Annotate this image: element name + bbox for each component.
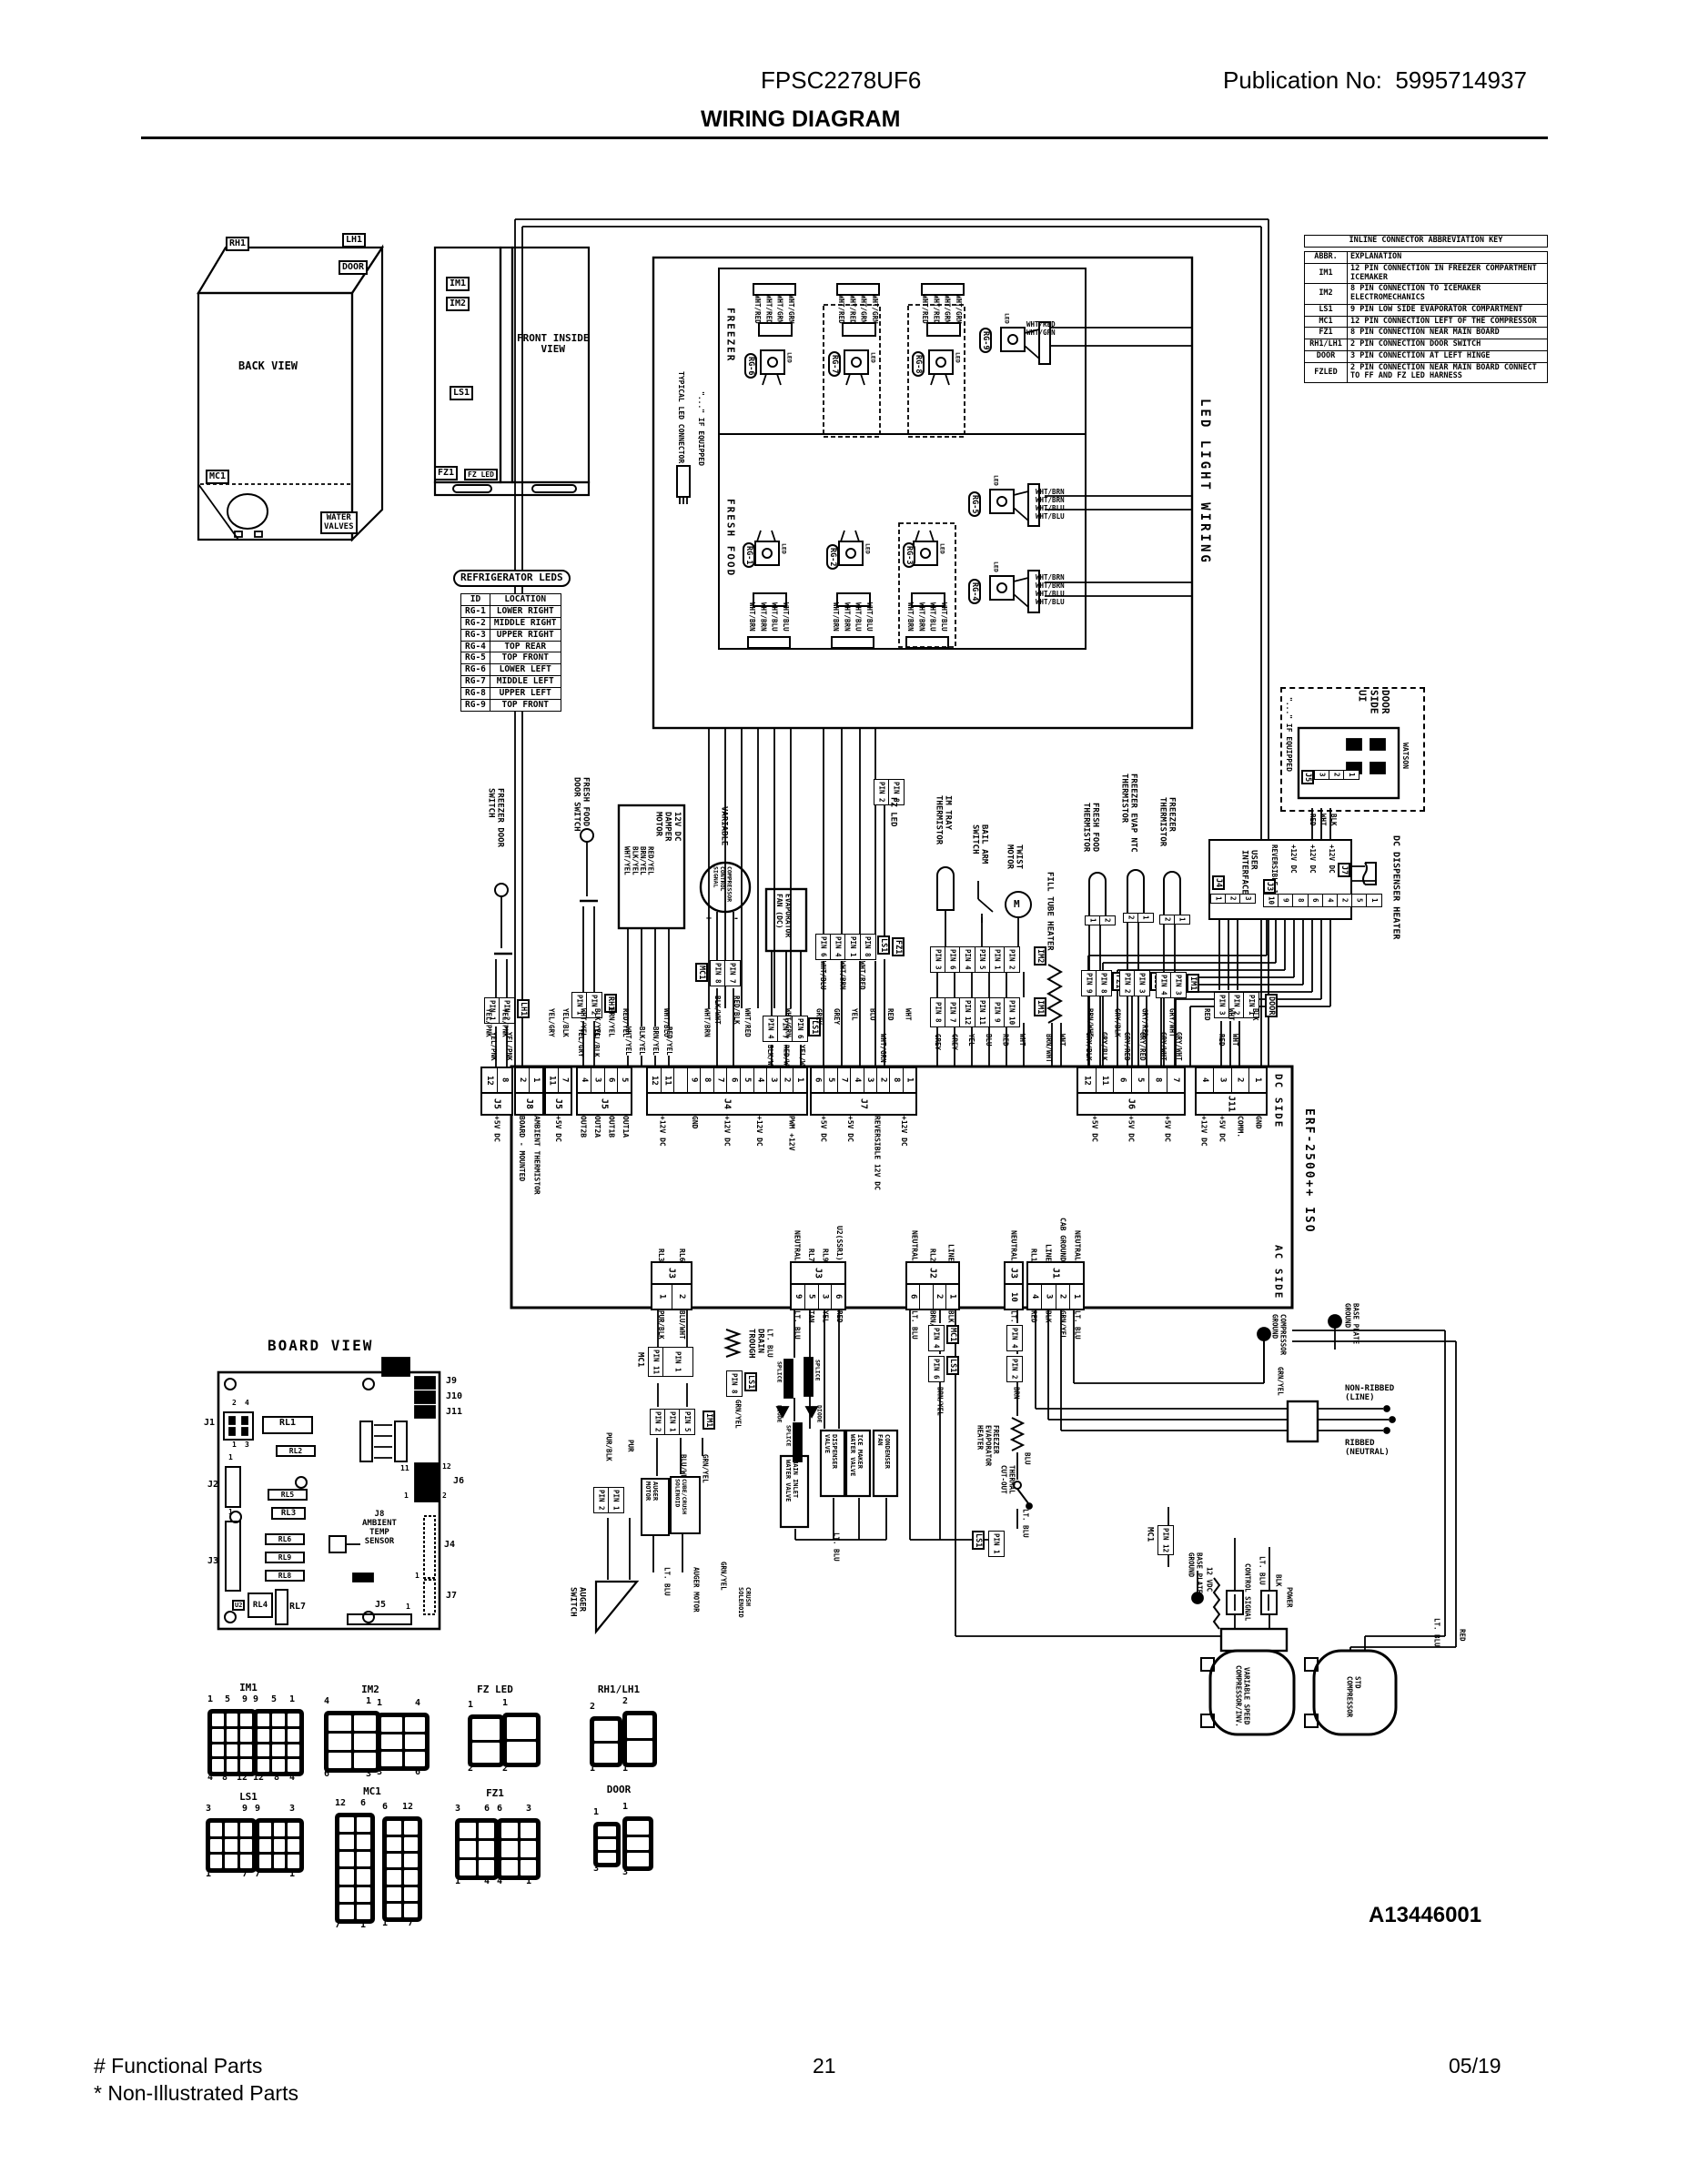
table-row: RH1/LH12 PIN CONNECTION DOOR SWITCH [1305,339,1548,351]
plus-label: + [706,914,712,924]
im1-wires-label: WHT [1018,1034,1026,1050]
pin-hole [472,1743,500,1764]
pin-hole [240,1855,252,1868]
item-label: 7 [335,1920,340,1930]
item-label: RED [1203,1008,1211,1067]
freezer-mod2-wires-label: WHT/GRN [860,295,868,324]
pin-hole [357,1835,371,1849]
led-module-led-label: LED [785,352,792,363]
fzled-label: FZ LED [888,797,897,827]
bv-j3p1: 1 [228,1509,233,1517]
pin-hole [339,1887,354,1902]
item-label: 6 [812,1068,824,1092]
door-side-ui-title: DOOR SIDE UI [1356,690,1390,714]
w-grnyel-1: GRN/YEL [701,1454,709,1483]
table-row: RG-8UPPER LEFT [461,688,561,700]
bv-rl1: RL1 [262,1416,313,1434]
item-label: 4 [754,1068,768,1092]
ff-thermistor-small-label: 2 [1099,915,1116,925]
im1-wires-label: GREY [934,1034,942,1050]
mc1-pin12-box: PIN 12 [1157,1525,1172,1555]
cv-fz1-right-block [497,1818,541,1880]
item-label: COMM. [1237,1116,1245,1227]
item-label: YEL [821,1310,829,1365]
item-label: 7 [242,1869,248,1879]
evap-ntc-pins-label: PIN 3 [1134,970,1150,996]
rg4-wires-label: WHT/BRN [1036,573,1065,581]
item-label: 3 [366,1769,371,1779]
fresh-mod3-wires-label: WHT/BLU [940,602,948,632]
w-blk-comp: BLK [1274,1574,1282,1587]
bv-j4: J4 [444,1540,455,1550]
ls1-tag-bottom: LS1 [972,1531,985,1550]
connector-key-rows: ABBR.EXPLANATIONIM112 PIN CONNECTION IN … [1304,251,1548,383]
im2-strip: PIN 3PIN 6PIN 4PIN 5PIN 1PIN 2 [930,946,1018,973]
splice-3: SPLICE [784,1425,791,1446]
item-label: 2 [781,1068,794,1092]
cv-ls1-left-block [206,1818,257,1873]
pin-hole [225,1823,237,1836]
ff-door-switch-label: FRESH FOOD DOOR SWITCH [571,777,591,832]
item-label: WHT/BRN [702,1008,711,1067]
item-label: WHT/GRN [783,1008,792,1067]
mc1-pins-mid-label: PIN 7 [724,960,741,986]
pin-hole [272,1714,284,1726]
table-row: IM112 PIN CONNECTION IN FREEZER COMPARTM… [1305,263,1548,284]
twist-motor-label: TWIST MOTOR [1005,844,1024,869]
mc1-lower-pins: PIN 11PIN 1 [648,1347,692,1377]
fzled-fz1-tag: FZ1 [892,937,905,956]
im1-wires-label: GREY [951,1034,959,1050]
pin-hole [354,1753,377,1768]
cv-im1-lb: 4812 [207,1773,248,1783]
table-row: RG-7MIDDLE LEFT [461,676,561,688]
pin-hole [501,1823,518,1838]
item-label: 3 [455,1804,460,1814]
pin-hole [381,1752,402,1766]
item-label: U2(SSR1) [835,1226,844,1261]
led-feed-wires-label: WHT/RED [858,961,866,990]
item-label: 12 [335,1798,346,1808]
control-signal-label: CONTROL SIGNAL [1243,1563,1251,1621]
item-label: 1 [622,1764,628,1774]
item-label: RL1 [1030,1249,1038,1261]
bail-arm-switch-label: BAIL ARM SWITCH [970,824,989,864]
led-module-led-label: LED [992,561,998,572]
item-label: 6 [484,1804,490,1814]
bv-j5p1: 1 [406,1603,410,1612]
watson-label: WATSON [1401,743,1410,769]
item-label: LT. BLU [1074,1310,1082,1365]
item-label: BRN/WHT [1087,1008,1095,1067]
pin-hole [240,1823,252,1836]
item-label: WHT/BLU [662,1008,671,1067]
door-ui-j5-wires: REDWHTBLK [1309,814,1338,826]
w-brn: BRN [1012,1387,1020,1400]
w-purblk-1: PUR/BLK [604,1432,612,1461]
item-label: 1 [904,1068,915,1092]
pin-hole [274,1855,286,1868]
item-label: +5V DC [1218,1116,1227,1227]
pin-hole [288,1855,299,1868]
backview-rh1-tag: RH1 [226,237,249,251]
base-plate-ground-label2: BASE PLATE GROUND [1187,1552,1202,1593]
pin-hole [329,1753,351,1768]
item-label: 7 [255,1869,260,1879]
table-row: LS19 PIN LOW SIDE EVAPORATOR COMPARTMENT [1305,304,1548,316]
item-label: 3 [591,1068,605,1092]
ff-thermistor-pins-label: PIN 8 [1096,970,1112,996]
pin-hole [594,1744,618,1764]
item-label: YEL [851,1008,859,1067]
door-ui-j5-wires-label: WHT [1319,814,1328,826]
dc-conn-j8: 21 J8 BOARD - MOUNTEDAMBIENT THERMISTOR [514,1008,544,1227]
bv-j9: J9 [446,1376,457,1386]
rg5-wires-label: WHT/BRN [1036,496,1065,504]
ff-thermistor-label: FRESH FOOD THERMISTOR [1081,803,1100,852]
rg4-label: RG-4 [968,579,981,604]
item-label: 1 [1070,1285,1083,1309]
item-label: 3 [1042,1285,1056,1309]
w-ltblu-heater: LT. BLU [1021,1509,1029,1538]
led-module-led-label: LED [869,352,875,363]
bv-j6p11: 11 [400,1465,409,1473]
led-feed-wires: WHT/BLUWHT/BRNWHT/RED [819,961,866,990]
item-label: 1 [793,1068,806,1092]
item-label: GRN/YEL [1059,1310,1067,1365]
bv-j11: J11 [446,1407,462,1417]
j5a-pins-label: 12 [482,1068,498,1092]
pin-hole [357,1817,371,1832]
item-label: 12 [648,1068,662,1092]
item-label: 7 [1167,1068,1185,1092]
item-label: 9 [255,1804,260,1814]
freezer-mod2-wires-label: WHT/RED [848,295,856,324]
j5a-wires-label: YEL/PNK [485,1008,493,1067]
splice-2: SPLICE [814,1360,820,1380]
pin-hole [274,1839,286,1853]
item-label: OUT2B [579,1116,587,1227]
freezer-mod1-wires-label: WHT/RED [764,295,773,324]
im-tray-thermistor-label: IM TRAY THERMISTOR [934,795,953,844]
fill-tube-wires-label: BRN/WHT [1045,1034,1053,1063]
drain-trough-label: DRAIN TROUGH [746,1329,765,1359]
pin-hole [354,1715,377,1731]
damper-wires-label: BLK/YEL [638,1026,646,1056]
door-ui-j5-wires-label: BLK [1329,814,1338,826]
thermal-cutout-label: THERMAL CUT-OUT [999,1465,1015,1494]
pin-hole [259,1839,271,1853]
item-label: 9 [792,1285,805,1309]
led-feed-pins: PIN 6PIN 4PIN 1PIN 8 [815,934,874,960]
mc1-pin12-tag: MC1 [1145,1527,1154,1542]
w-brnyel-lower: BRN/YEL [935,1387,944,1416]
pin-hole [627,1715,652,1738]
item-label: CAB GROUND [1059,1218,1067,1261]
item-label: +5V DC [846,1116,854,1227]
item-label: 6 [1114,1068,1132,1092]
pin-hole [225,1855,237,1868]
table-row: RG-9TOP FRONT [461,699,561,711]
ui-j3-pins-label: 1 [1366,894,1382,907]
freezer-mod3-wires-label: WHT/RED [921,295,929,324]
pin-hole [227,1714,238,1726]
freezer-mod1-wires-label: WHT/GRN [787,295,795,324]
bv-rl4: RL4 [248,1592,273,1618]
mc1-pin4-tag: MC1 [946,1325,959,1344]
backview-mc1-tag: MC1 [206,470,229,484]
im1-strip-label: PIN 10 [1004,997,1020,1027]
item-label: 1 [377,1698,382,1708]
freezer-mod2-wires: WHT/REDWHT/REDWHT/GRNWHT/GRN [837,295,879,324]
fresh-mod2-wires-label: WHT/BLU [854,602,863,632]
item-label: 6 [324,1769,329,1779]
item-label: 2 [590,1702,595,1712]
item-label: 4 [1028,1285,1042,1309]
cv-mc1-left-block [335,1813,375,1924]
cv-fzled-left-block [468,1714,504,1767]
bv-j2p1: 1 [228,1454,233,1462]
cv-im1-title: IM1 [217,1682,280,1694]
crush-solenoid-label: CRUSH SOLENOID [737,1587,752,1618]
mc1-pin4-box: PIN 4 [928,1325,943,1351]
pin-hole [210,1839,222,1853]
door-ui-j5-label: J5 [1301,770,1314,784]
dispenser-valve-label: DISPENSER VALVE [824,1434,838,1469]
item-label: 3 [206,1804,211,1814]
freezer-thermistor-label: FREEZER THERMISTOR [1157,797,1177,846]
led-feed-wires-label: WHT/BRN [839,961,847,990]
pin-hole [405,1734,426,1749]
pin-hole [627,1853,649,1866]
fresh-mod2-wires-label: WHT/BLU [865,602,874,632]
key-table-title: INLINE CONNECTOR ABBREVIATION KEY [1305,236,1548,248]
item-label [920,1285,933,1309]
mc1-tag-mid: MC1 [695,963,708,982]
item-label: WHT/RED [743,1008,752,1067]
pin-hole [598,1826,616,1836]
dc-conn-j5c: WHT/YELBLK/YELBRN/YELRED/YEL 4365 J5 OUT… [576,1008,632,1227]
table-row: IM28 PIN CONNECTION TO ICEMAKER ELECTROM… [1305,284,1548,305]
item-label: RL3 [657,1249,665,1261]
pin-hole [212,1744,224,1757]
cv-im1-lt: 159 [207,1694,248,1704]
pin-hole [288,1823,299,1836]
im1-strip: PIN 8PIN 7PIN 12PIN 11PIN 9PIN 10 [930,997,1018,1027]
item-label [674,1068,688,1092]
typical-led-connector-label: TYPICAL LED CONNECTOR [677,371,685,463]
cv-im1-lb-label: 12 [237,1773,248,1783]
item-label: NEUTRAL [793,1230,801,1261]
item-label: 6 [605,1068,619,1092]
item-label: GRY/BLK [1114,1008,1122,1067]
cv-rh1lh1-title: RH1/LH1 [577,1683,661,1695]
item-label: GREY [814,1008,823,1067]
item-label: RED [835,1310,844,1365]
ac-conn-j3a: RL3RL6 J3 12 PUR/BLKBLU/WHT [651,1185,692,1365]
evap-ntc-small-label: 1 [1137,913,1154,923]
ff-thermistor-pins: PIN 9PIN 8 [1081,970,1110,996]
mc1-auger-pins: PIN 2PIN 1 [593,1487,622,1513]
j5a-name: J5 [480,1094,513,1116]
w-grnyel-drain: GRN/YEL [733,1400,742,1429]
pin-hole [357,1887,371,1902]
pin-hole [288,1744,299,1757]
bv-rl9: RL9 [265,1552,305,1563]
rg6-label: RG-6 [744,353,757,379]
rg5-wires-label: WHT/BLU [1036,512,1065,521]
pin-hole [387,1821,401,1835]
bv-rl5: RL5 [268,1489,308,1501]
pin-hole [404,1854,419,1867]
ac-conn-j1: RL1LINECAB GROUNDNEUTRAL J1 4321 REDBLKG… [1026,1185,1085,1365]
w-grnyel-ground: GRN/YEL [1276,1367,1284,1396]
bv-j3: J3 [207,1556,218,1566]
pin-hole [240,1714,252,1726]
ui-j4-pins-label: 3 [1239,894,1256,904]
item-label: 4 [415,1698,420,1708]
w-blu: BLU [1023,1452,1031,1465]
led-feed-ls1-tag: LS1 [877,935,890,955]
w-ltblu-auger: LT. BLU [662,1567,671,1596]
cv-fzled-right-block [502,1713,541,1767]
pin-hole [258,1714,269,1726]
rg9-label: RG-9 [979,328,992,353]
fresh-mod1-wires-label: WHT/BRN [759,602,767,632]
pin-hole [594,1721,618,1741]
auger-motor-wire-label: AUGER MOTOR [692,1567,700,1613]
table-row: DOOR3 PIN CONNECTION AT LEFT HINGE [1305,350,1548,362]
bv-rl7: RL7 [289,1602,306,1612]
evap-ntc-label: FREEZER EVAP NTC THERMISTOR [1119,773,1138,853]
erf-board-label: ERF-2500++ ISO [1301,1108,1315,1234]
pin-hole [227,1744,238,1757]
item-label: 3 [622,1867,628,1877]
cv-im1-rb: 1284 [253,1773,295,1783]
item-label: RED [1030,1310,1038,1365]
j5a-signals-label: +5V DC [493,1116,501,1227]
led-feed-wires-label: WHT/BLU [819,961,827,990]
rg9-wires-label: WHT/GRN [1026,329,1056,337]
item-label: 8 [890,1068,903,1092]
frontview-fzled-tag: FZ LED [464,469,498,480]
fill-tube-heater-label: FILL TUBE HEATER [1045,872,1054,951]
main-inlet-label: MAIN INLET WATER VALVE [784,1460,799,1501]
cv-im2-title: IM2 [339,1683,402,1695]
w-grnyel-crush: GRN/YEL [719,1562,727,1591]
cv-im1-rt: 951 [253,1694,295,1704]
fresh-mod3-wires-label: WHT/BRN [917,602,925,632]
pin-hole [288,1714,299,1726]
item-label: 2 [672,1285,692,1309]
pin-hole [212,1714,224,1726]
pin-hole [387,1870,401,1884]
item-label: 1 [946,1285,958,1309]
ui-j3-pins: 109864251 [1263,894,1381,907]
mc1-pin4b: PIN 4 [1006,1325,1021,1351]
item-label: +12V DC [755,1116,763,1227]
bv-j1p3: 3 [245,1441,249,1450]
footer-page-number: 21 [813,2055,836,2078]
bv-j2: J2 [207,1480,218,1490]
item-label: 1 [360,1920,366,1930]
pin-hole [354,1734,377,1749]
auger-switch-label: AUGER SWITCH [568,1587,587,1617]
dc-conn-j6: BRN/WHTGRY/BLKGRY/REDGRY/WHT 12116587 J6… [1076,1008,1186,1227]
item-label: 6 [832,1285,844,1309]
evap-ntc-small: 21 [1123,913,1152,923]
item-label: 1 [530,1068,542,1092]
item-label: +5V DC [1164,1116,1172,1227]
item-label: 7 [838,1068,851,1092]
item-label: BLK [1045,1310,1053,1365]
ls1-pin6-tag: LS1 [946,1356,959,1375]
pin-hole [627,1741,652,1764]
pin-hole [339,1905,354,1919]
ls1-tag-drain: LS1 [744,1372,757,1391]
item-label: RED/YEL [622,1008,630,1067]
pin-hole [479,1860,495,1876]
ac-side-label: AC SIDE [1272,1245,1284,1299]
pin-hole [598,1853,616,1863]
bv-j4p1: 1 [415,1572,419,1581]
item-label: 3 [593,1864,599,1874]
fresh-mod3-wires: WHT/BRNWHT/BRNWHT/BLUWHT/BLU [906,602,948,632]
item-label: LINE [1045,1244,1053,1261]
pin-hole [405,1752,426,1766]
item-label: 1 [502,1698,508,1708]
item-label: 3 [377,1767,382,1777]
freezer-mod2-wires-label: WHT/RED [837,295,845,324]
cv-im1-lb-label: 8 [222,1773,227,1783]
ls1-pin6-box: PIN 6 [928,1356,943,1382]
rg5-wires: WHT/BRNWHT/BRNWHT/BLUWHT/BLU [1036,488,1065,521]
item-label: BLU [868,1008,876,1067]
door-ui-j5-pins: 321 [1314,770,1359,780]
led-module-led-label: LED [992,475,998,486]
ui-j7-label: J7 [1338,863,1350,877]
w-ltblu-std: LT. BLU [1432,1618,1440,1647]
fresh-mod1-wires: WHT/BRNWHT/BRNWHT/BLUWHT/BLU [748,602,790,632]
cv-im1-rb-label: 4 [289,1773,295,1783]
item-label: 5 [1132,1068,1150,1092]
pin-hole [387,1904,401,1917]
item-label: 11 [662,1068,675,1092]
j5a-pins: 128 [480,1067,513,1094]
backview-door-tag: DOOR [339,260,368,275]
footer-date: 05/19 [1449,2055,1501,2078]
table-row: IDLOCATION [461,594,561,606]
item-label: 2 [622,1696,628,1706]
rg9-wires-label: WHT/RED [1026,320,1056,329]
cv-im1-rb-label: 12 [253,1773,264,1783]
auger-motor-box-label: AUGER MOTOR [644,1481,659,1501]
freezer-thermistor-im1-tag: IM1 [1187,974,1199,993]
ui-j4-pins: 123 [1210,894,1255,904]
variable-compressor-label: VARIABLE SPEED COMPRESSOR/INV. [1234,1665,1249,1727]
item-label: 8 [701,1068,714,1092]
pin-hole [460,1860,476,1876]
diode-1: DIODE [775,1405,782,1423]
item-label: 2 [1232,1068,1249,1092]
item-label: 4 [1197,1068,1214,1092]
pin-hole [240,1759,252,1772]
im1-strip-tag: IM1 [1034,997,1046,1016]
pin-hole [259,1855,271,1868]
item-label: 11 [1097,1068,1115,1092]
freezer-mod3-wires-label: WHT/GRN [955,295,963,324]
bv-j6p2: 2 [442,1492,447,1501]
